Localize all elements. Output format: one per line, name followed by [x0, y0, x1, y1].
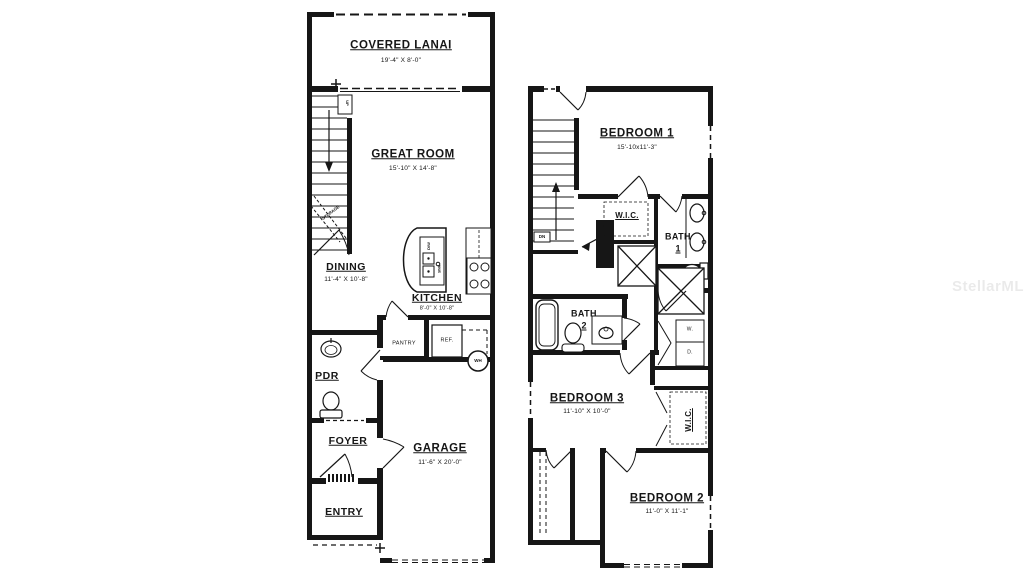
dining-label: DINING — [326, 262, 366, 273]
stairs-dn-label: DN — [539, 235, 546, 240]
entry-label: ENTRY — [325, 507, 363, 518]
floorplan-image: COVERED LANAI 19'-4" X 8'-0" GREAT ROOM … — [0, 0, 1024, 576]
pdr-label: PDR — [315, 371, 339, 382]
covered-lanai-label: COVERED LANAI — [350, 40, 452, 52]
sink-label: SINK — [438, 265, 441, 273]
floorplan-drawing — [0, 0, 1024, 576]
linen-closet-2 — [658, 268, 704, 314]
entry-door — [320, 454, 353, 482]
foyer-garage-door — [383, 439, 404, 468]
floor1-plan — [307, 12, 495, 563]
garage-label: GARAGE — [413, 443, 466, 455]
pantry-label: PANTRY — [392, 341, 416, 347]
linen-closet-1 — [618, 246, 656, 286]
wic1-label: W.I.C. — [615, 212, 639, 220]
dryer-label: D. — [687, 351, 693, 356]
stairs-up-label: UP — [345, 100, 349, 106]
mls-watermark: StellarMLS — [952, 278, 1024, 295]
wic2-label: W.I.C. — [685, 408, 693, 432]
bath1-label: BATH — [665, 233, 691, 242]
bedroom2-dims: 11'-0" X 11'-1" — [645, 509, 688, 516]
bath2-label: BATH — [571, 310, 597, 319]
bath2-number: 2 — [581, 322, 586, 331]
laundry-closet — [658, 320, 704, 366]
bedroom1-dims: 15'-10x11'-3" — [617, 145, 657, 152]
floor1-stairs — [311, 95, 352, 255]
bedroom1-label: BEDROOM 1 — [600, 128, 674, 140]
ref-label: REF. — [440, 338, 453, 344]
bedroom3-dims: 11'-10" X 10'-0" — [563, 409, 610, 416]
floor2-stairs — [533, 120, 604, 251]
bedroom3-label: BEDROOM 3 — [550, 393, 624, 405]
covered-lanai-dims: 19'-4" X 8'-0" — [381, 58, 421, 65]
water-heater-label: WH — [474, 359, 482, 364]
kitchen-island — [404, 228, 447, 292]
foyer-label: FOYER — [329, 436, 368, 447]
dishwasher-label: D/W — [427, 242, 431, 250]
range-counter — [466, 228, 491, 294]
dining-dims: 11'-4" X 10'-8" — [324, 277, 368, 284]
bedroom2-label: BEDROOM 2 — [630, 493, 704, 505]
bath1-number: 1 — [675, 245, 680, 254]
kitchen-label: KITCHEN — [412, 293, 462, 304]
great-room-dims: 15'-10" X 14'-8" — [389, 166, 437, 173]
pantry-door — [386, 301, 408, 317]
garage-dims: 11'-6" X 20'-0" — [418, 460, 462, 467]
kitchen-dims: 8'-0" X 10'-8" — [420, 306, 455, 312]
bedroom3-closet — [540, 452, 546, 536]
washer-label: W. — [687, 328, 693, 333]
wic2-closet — [656, 392, 706, 446]
great-room-label: GREAT ROOM — [371, 149, 454, 161]
